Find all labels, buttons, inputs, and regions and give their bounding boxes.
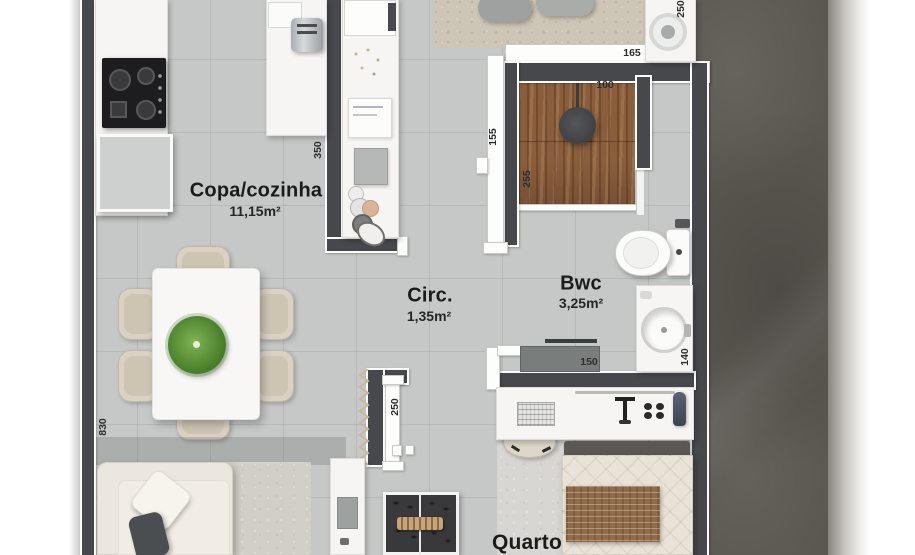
sink-drain (661, 327, 667, 333)
dim-bedroom-door-wall: 250 (389, 398, 401, 416)
cooktop-burner (110, 101, 127, 118)
dim-vanity-width: 150 (580, 356, 598, 368)
curtain-zigzag (356, 369, 372, 465)
exterior-fade (828, 0, 870, 555)
floor-plan: Copa/cozinha 11,15m² Circ. 1,35m² Bwc 3,… (0, 0, 915, 555)
desk-lamp-base (619, 420, 631, 424)
bed-throw-blanket (566, 486, 660, 542)
counter-end-jamb (397, 236, 408, 256)
hall-door-handle (476, 157, 488, 174)
wall-left-outer (80, 0, 96, 555)
exterior-mass (695, 0, 828, 555)
hall-door-cap (483, 242, 508, 254)
counter-appliance-vent (388, 3, 396, 31)
toaster-slots (297, 31, 317, 34)
cookbook-lines (353, 114, 377, 116)
room-label-bedroom: Quarto (492, 531, 562, 555)
toilet-flush-plate (675, 219, 690, 228)
entry-pouf (478, 0, 532, 22)
cooktop-burner (137, 67, 155, 85)
room-label-kitchen: Copa/cozinha (190, 180, 322, 203)
toilet-hinge (676, 249, 682, 255)
dried-flowers (348, 44, 388, 86)
room-area-kitchen: 11,15m² (229, 203, 280, 219)
dim-shower-width: 100 (596, 79, 614, 91)
shower-glass-door (636, 168, 645, 216)
table-plant-highlight (193, 341, 200, 348)
room-area-bathroom: 3,25m² (559, 295, 603, 311)
room-label-circulation: Circ. (407, 285, 452, 308)
dim-entry-width: 165 (623, 47, 641, 59)
dim-hall-door-width: 155 (487, 128, 499, 146)
dim-shower-depth: 255 (521, 170, 533, 188)
toilet-bowl-inner (623, 237, 659, 269)
dim-vanity-depth: 140 (679, 348, 691, 366)
shower-tray-edge (517, 204, 637, 211)
room-label-bathroom: Bwc (560, 273, 602, 296)
hall-sliding-door (487, 55, 504, 245)
living-floor-shade (96, 437, 346, 465)
desk-glasses (656, 403, 664, 410)
cooktop-burner (136, 100, 156, 120)
sink-faucet (684, 324, 691, 337)
entry-pouf (536, 0, 594, 16)
desk-glasses (644, 403, 652, 410)
wall-shower-right (635, 75, 652, 170)
bedroom-door-handle (392, 445, 402, 456)
washing-machine-drum (661, 25, 675, 39)
console-object-small (340, 538, 349, 545)
dim-kitchen-counter-length: 350 (312, 141, 324, 159)
wall-kitchen-island (325, 0, 343, 240)
cooktop-knobs (158, 70, 162, 116)
rain-shower-head (559, 107, 596, 144)
console-object (337, 497, 358, 529)
bedroom-door-cap (382, 461, 404, 471)
water-bottle (673, 392, 686, 426)
dishwasher (97, 134, 173, 212)
cooktop-burner (109, 69, 131, 91)
desk-glasses (644, 412, 652, 419)
towel-bar (545, 339, 597, 343)
cookbook-lines (353, 106, 383, 108)
wall-bath-left (503, 61, 519, 247)
dim-living-length: 830 (97, 418, 109, 436)
bedroom-door-cap (382, 375, 404, 385)
keyboard (517, 402, 555, 426)
cutting-board (354, 148, 388, 185)
dim-laundry-width: 250 (675, 0, 687, 18)
room-area-circulation: 1,35m² (407, 308, 451, 324)
desk-lamp (623, 399, 627, 422)
desk-glasses (656, 412, 664, 419)
bedroom-door-handle (405, 445, 414, 455)
wardrobe-folded-item (397, 517, 443, 530)
cookbooks (348, 98, 392, 138)
desk-pen-tray (575, 391, 675, 394)
vanity-soap (640, 291, 652, 299)
toaster-slots (297, 24, 317, 27)
